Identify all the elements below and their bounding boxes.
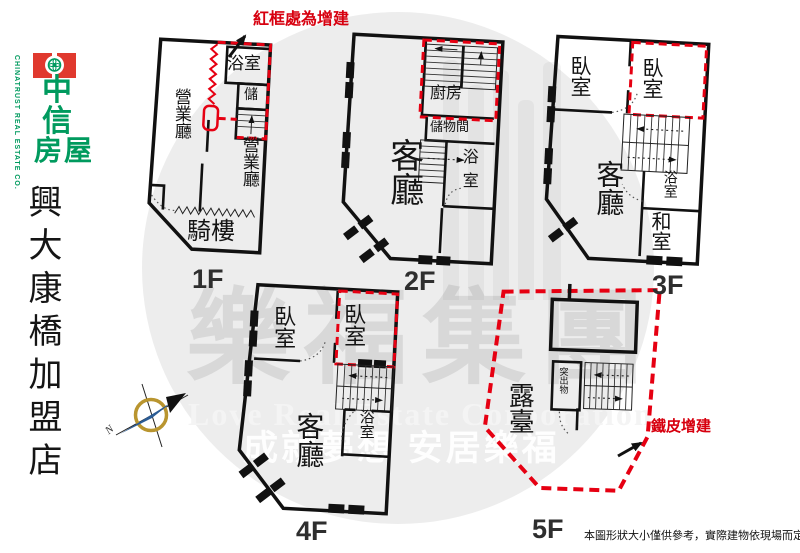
red-frame-note: 紅框處為增建	[253, 12, 349, 28]
floor-label-3f: 3F	[652, 272, 684, 299]
room-label-hall-left-1f: 營業廳	[172, 88, 190, 139]
floor-plan-3f	[539, 36, 708, 267]
room-label-living-4f: 客廳	[294, 412, 323, 468]
compass-icon	[116, 384, 188, 447]
room-label-protrusion-5f: 突出物	[558, 367, 567, 394]
room-label-bed-right-4f: 臥室	[342, 303, 365, 347]
room-label-bed-left-3f: 臥室	[568, 55, 590, 97]
room-label-living-2f: 客廳	[385, 138, 421, 206]
room-label-living-3f: 客廳	[594, 160, 623, 216]
room-label-storage-1f: 儲	[244, 87, 258, 102]
floorplan-sheet: 樂福集團 Love Real Estate Corporation 成就夢想 安…	[0, 0, 800, 553]
disclaimer-text: 本圖形狀大小僅供參考，實際建物依現場而定。	[584, 527, 800, 543]
floor-label-4f: 4F	[296, 518, 328, 545]
room-label-tatami-3f: 和室	[648, 211, 669, 251]
floor-label-2f: 2F	[404, 268, 436, 295]
room-label-bath-1f: 浴室	[227, 55, 261, 73]
floor-label-1f: 1F	[192, 266, 224, 293]
room-label-bath-2f: 浴室	[459, 148, 476, 196]
room-label-bed-left-4f: 臥室	[272, 305, 295, 349]
room-label-arcade-1f: 騎樓	[187, 219, 235, 244]
room-label-hall-right-1f: 營業廳	[240, 136, 258, 187]
floor-plan-4f	[236, 284, 398, 516]
room-label-terrace-5f: 露臺	[506, 382, 533, 434]
floor-label-5f: 5F	[532, 516, 564, 543]
room-label-kitchen-2f: 廚房	[430, 86, 462, 103]
room-label-bath-3f: 浴室	[663, 170, 678, 198]
room-label-bath-4f: 浴室	[358, 409, 374, 439]
metal-addition-note: 鐵皮增建	[651, 419, 711, 434]
room-label-bed-right-3f: 臥室	[640, 57, 662, 99]
room-label-storage-2f: 儲物間	[430, 120, 469, 134]
